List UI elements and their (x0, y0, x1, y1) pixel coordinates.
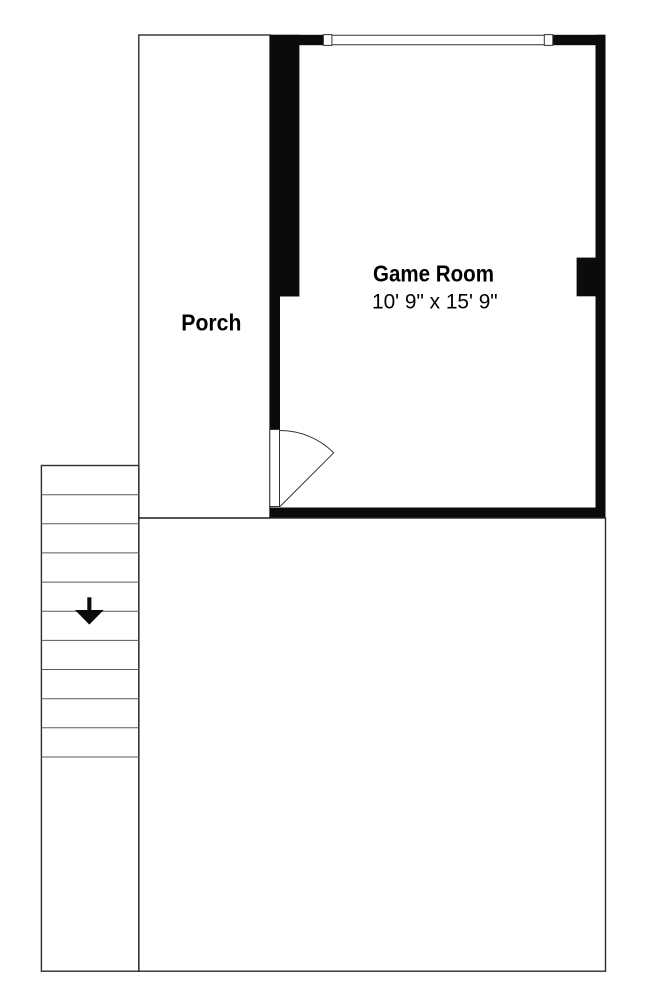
svg-text:Porch: Porch (181, 310, 241, 336)
svg-text:Game Room: Game Room (373, 261, 494, 287)
svg-text:10' 9" x 15' 9": 10' 9" x 15' 9" (372, 291, 498, 314)
